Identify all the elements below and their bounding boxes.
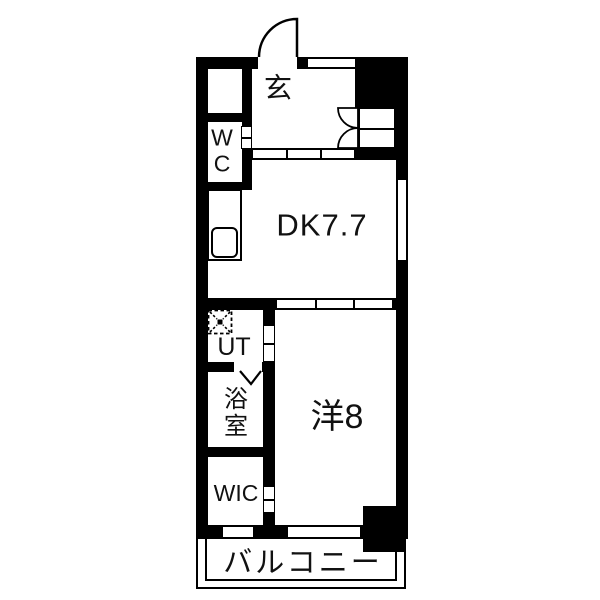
room-label-ut: UT	[217, 334, 250, 360]
sliding-door-divider	[286, 150, 288, 158]
jamb-divider	[264, 499, 274, 501]
room-label-western: 洋8	[311, 400, 364, 436]
room-label-bath: 浴室	[223, 387, 249, 441]
entrance-opening	[258, 57, 297, 69]
shoe-cabinet	[358, 107, 396, 149]
cabinet-door-swing-top-icon	[338, 108, 358, 128]
wic-door-jamb	[263, 486, 275, 513]
kitchen-sink	[211, 227, 238, 258]
wc-door-jamb	[241, 126, 252, 149]
cabinet-divider	[360, 128, 394, 130]
room-label-balcony: バルコニー	[223, 548, 382, 578]
entrance-door-swing-icon	[259, 19, 297, 57]
room-label-dk: DK7.7	[276, 210, 367, 243]
room-label-wc: WC	[210, 125, 235, 177]
jamb-divider	[242, 137, 251, 139]
sliding-door-divider	[315, 300, 317, 308]
pillar-top-right	[355, 57, 408, 108]
bath-folding-door-icon	[240, 371, 261, 384]
washing-machine-icon	[209, 311, 232, 334]
wall-bath-wic	[196, 447, 275, 457]
ut-door-jamb	[263, 325, 275, 362]
wall-genkan-left	[242, 57, 252, 190]
window-dk-right	[396, 180, 408, 260]
pillar-bottom-right	[363, 506, 404, 552]
cabinet-door-swing-bottom-icon	[338, 128, 358, 148]
sliding-door-divider	[353, 300, 355, 308]
room-label-wic: WIC	[214, 481, 259, 505]
room-label-genkan: 玄	[264, 73, 292, 102]
window-top	[308, 57, 355, 69]
sliding-door-dk-western	[276, 299, 393, 309]
bath-door-opening	[234, 362, 262, 372]
sliding-door-divider	[320, 150, 322, 158]
sliding-door-genkan-dk	[252, 149, 355, 159]
floor-plan: 玄 WC DK7.7 UT 浴室 洋8 WIC バルコニー	[0, 0, 600, 600]
jamb-divider	[264, 343, 274, 345]
